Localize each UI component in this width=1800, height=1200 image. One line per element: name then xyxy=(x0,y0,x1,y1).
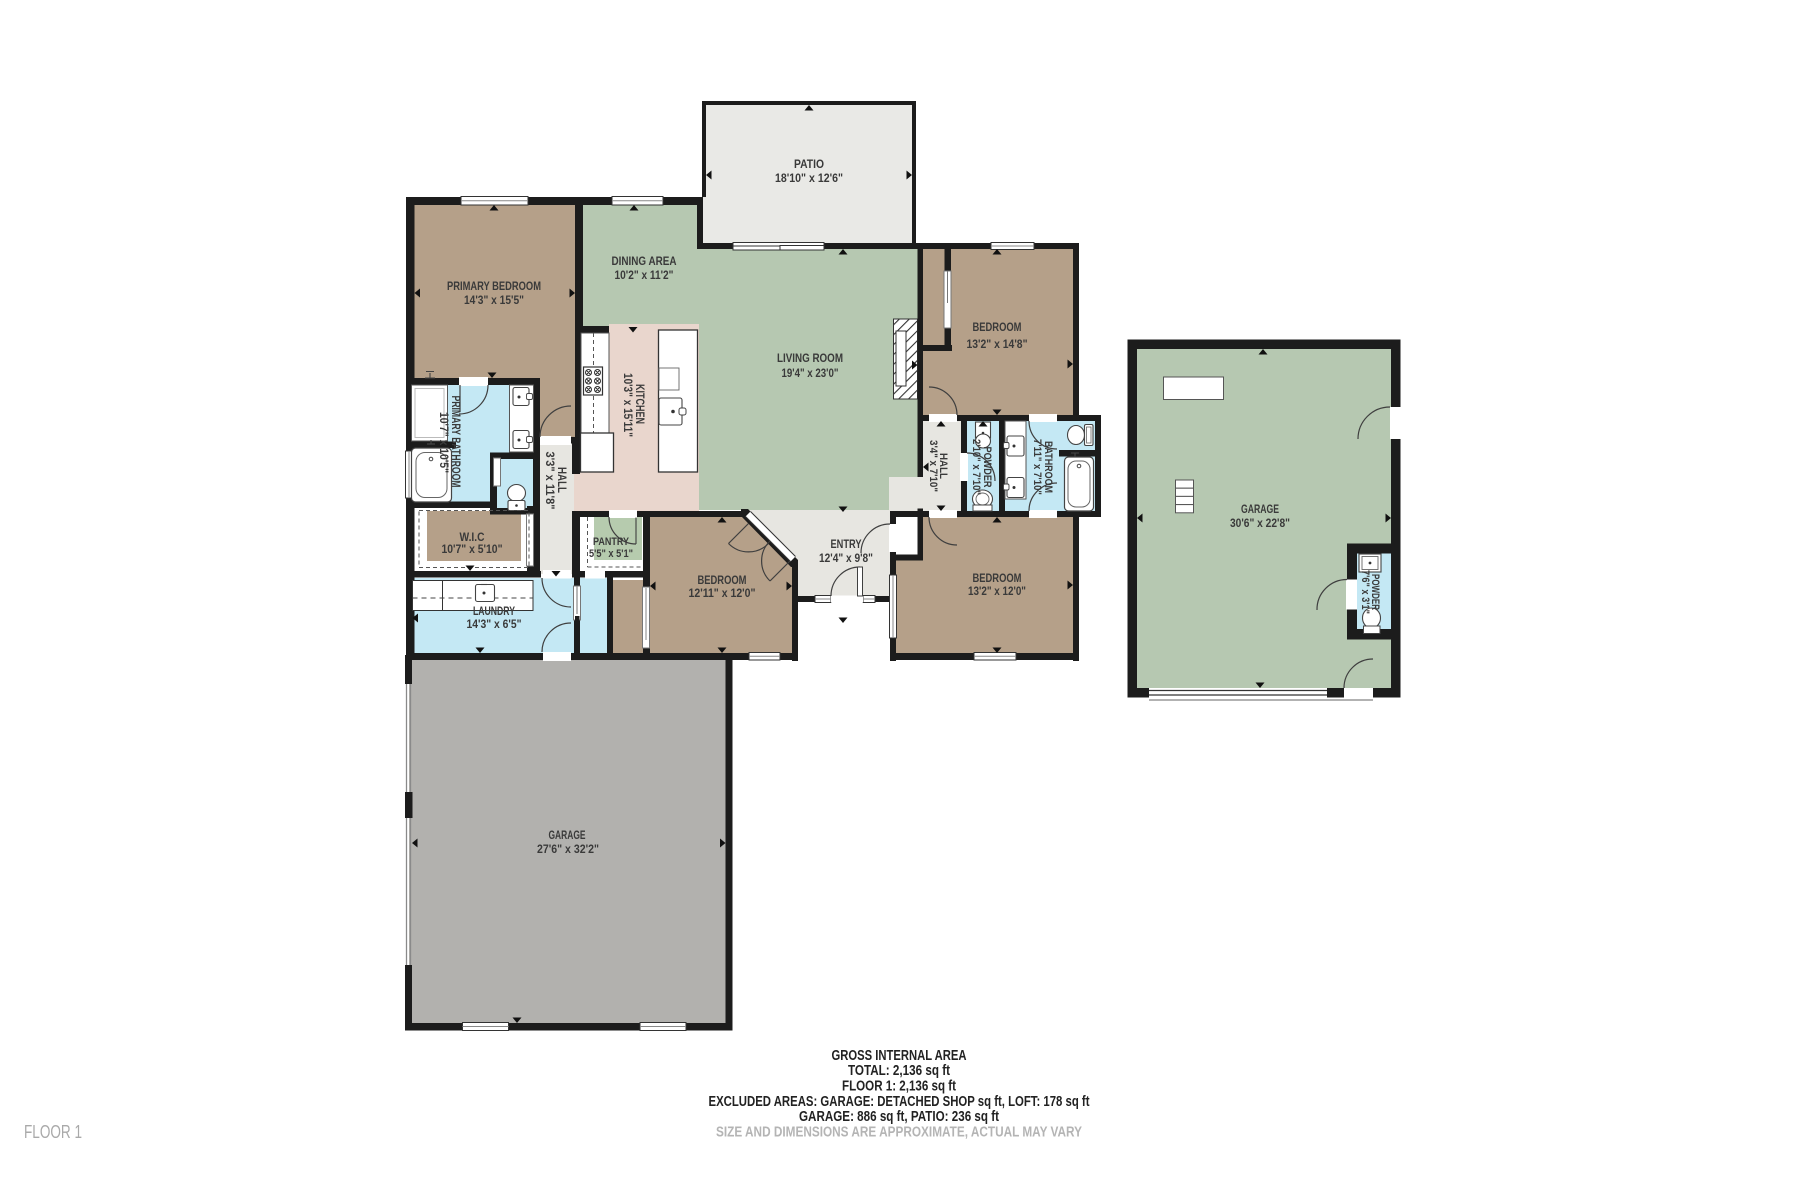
svg-text:7'6" x 3'1": 7'6" x 3'1" xyxy=(1359,570,1371,614)
svg-text:LAUNDRY: LAUNDRY xyxy=(473,606,515,618)
svg-text:PANTRY: PANTRY xyxy=(593,536,630,548)
svg-text:GROSS INTERNAL AREA: GROSS INTERNAL AREA xyxy=(832,1048,967,1064)
svg-text:FLOOR 1: 2,136 sq ft: FLOOR 1: 2,136 sq ft xyxy=(842,1079,956,1095)
svg-text:GARAGE: GARAGE xyxy=(1241,504,1279,516)
svg-text:PRIMARY BEDROOM: PRIMARY BEDROOM xyxy=(447,281,541,293)
svg-text:10'7" x 5'10": 10'7" x 5'10" xyxy=(442,544,503,556)
svg-text:13'2" x 14'8": 13'2" x 14'8" xyxy=(967,339,1028,351)
svg-text:2'10" x 7'10": 2'10" x 7'10" xyxy=(970,439,982,495)
svg-text:12'11" x 12'0": 12'11" x 12'0" xyxy=(689,588,756,600)
svg-text:BEDROOM: BEDROOM xyxy=(973,573,1022,585)
svg-text:10'7" x 10'5": 10'7" x 10'5" xyxy=(437,412,449,473)
svg-text:12'4" x 9'8": 12'4" x 9'8" xyxy=(819,553,873,565)
svg-text:SIZE AND DIMENSIONS ARE APPROX: SIZE AND DIMENSIONS ARE APPROXIMATE, ACT… xyxy=(716,1125,1082,1141)
svg-text:FLOOR 1: FLOOR 1 xyxy=(24,1122,82,1142)
svg-text:W.I.C: W.I.C xyxy=(460,532,485,544)
svg-text:7'11" x 7'10": 7'11" x 7'10" xyxy=(1031,439,1043,495)
svg-text:27'6" x 32'2": 27'6" x 32'2" xyxy=(537,844,599,856)
svg-text:13'2" x 12'0": 13'2" x 12'0" xyxy=(968,586,1026,598)
svg-text:TOTAL: 2,136 sq ft: TOTAL: 2,136 sq ft xyxy=(848,1063,950,1079)
svg-text:EXCLUDED AREAS: GARAGE: DETACH: EXCLUDED AREAS: GARAGE: DETACHED SHOP sq… xyxy=(709,1094,1090,1110)
svg-text:14'3" x 15'5": 14'3" x 15'5" xyxy=(464,295,524,307)
svg-text:10'2" x 11'2": 10'2" x 11'2" xyxy=(615,270,674,282)
svg-text:10'3" x 15'11": 10'3" x 15'11" xyxy=(621,373,633,437)
svg-text:DINING AREA: DINING AREA xyxy=(612,256,677,268)
svg-text:BEDROOM: BEDROOM xyxy=(698,575,747,587)
svg-text:14'3" x 6'5": 14'3" x 6'5" xyxy=(467,619,522,631)
svg-text:BEDROOM: BEDROOM xyxy=(973,322,1022,334)
svg-text:GARAGE: GARAGE xyxy=(549,830,586,842)
svg-text:30'6" x 22'8": 30'6" x 22'8" xyxy=(1230,518,1290,530)
svg-text:PATIO: PATIO xyxy=(794,159,824,171)
svg-text:3'4" x 7'10": 3'4" x 7'10" xyxy=(927,440,939,492)
svg-text:KITCHEN: KITCHEN xyxy=(633,384,645,424)
svg-text:GARAGE: 886 sq ft, PATIO: 236: GARAGE: 886 sq ft, PATIO: 236 sq ft xyxy=(799,1109,999,1125)
svg-text:PRIMARY BATHROOM: PRIMARY BATHROOM xyxy=(449,396,461,488)
svg-text:5'5" x 5'1": 5'5" x 5'1" xyxy=(589,548,633,560)
svg-text:18'10" x 12'6": 18'10" x 12'6" xyxy=(775,173,843,185)
svg-text:HALL: HALL xyxy=(555,467,567,493)
svg-text:ENTRY: ENTRY xyxy=(831,539,862,551)
svg-text:3'3" x 11'8": 3'3" x 11'8" xyxy=(543,452,555,510)
svg-text:LIVING ROOM: LIVING ROOM xyxy=(777,353,843,365)
svg-text:19'4" x 23'0": 19'4" x 23'0" xyxy=(782,368,839,380)
